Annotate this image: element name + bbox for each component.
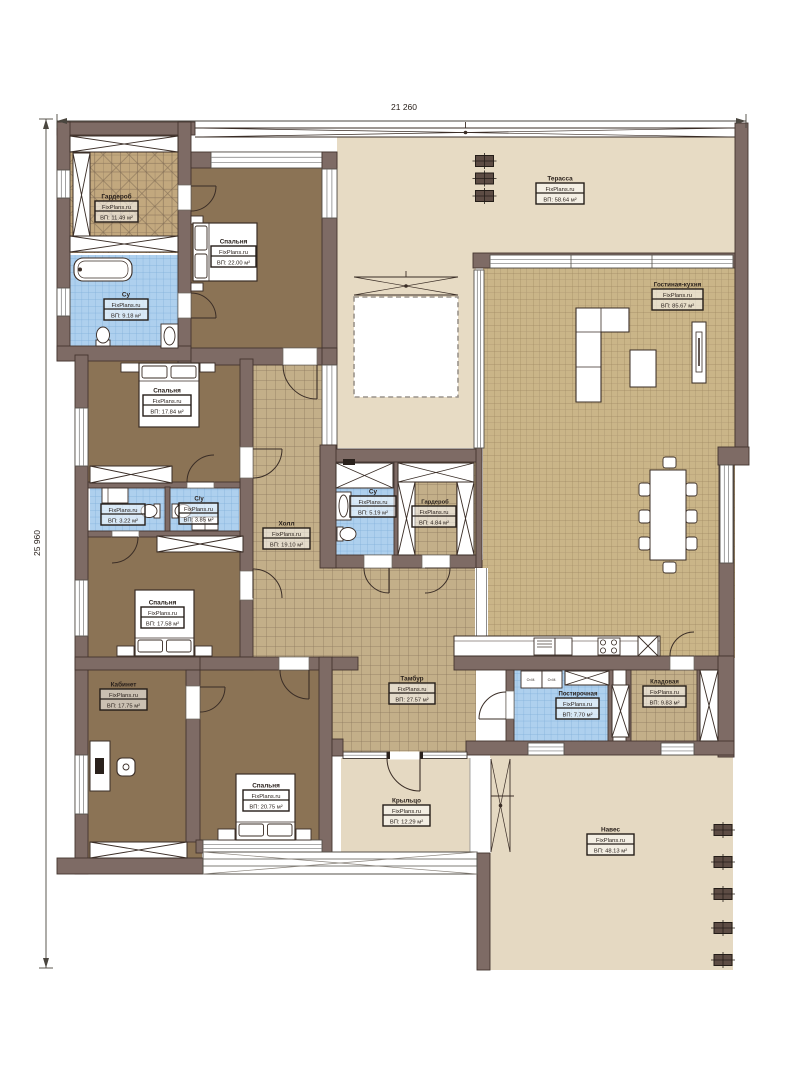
svg-text:FixPlans.ru: FixPlans.ru — [650, 690, 679, 696]
svg-text:FixPlans.ru: FixPlans.ru — [102, 205, 131, 211]
svg-text:Навес: Навес — [601, 827, 620, 834]
svg-text:FixPlans.ru: FixPlans.ru — [420, 510, 449, 516]
svg-text:Крыльцо: Крыльцо — [392, 798, 421, 805]
svg-text:FixPlans.ru: FixPlans.ru — [563, 702, 592, 708]
svg-text:Гардероб: Гардероб — [101, 193, 131, 201]
svg-text:ВП: 7.70 м²: ВП: 7.70 м² — [562, 712, 592, 718]
svg-text:ВП: 17.58 м²: ВП: 17.58 м² — [146, 621, 179, 627]
svg-text:Спальня: Спальня — [149, 600, 177, 607]
svg-text:ВП: 17.84 м²: ВП: 17.84 м² — [150, 409, 183, 415]
svg-text:Су: Су — [122, 292, 131, 299]
svg-text:ВП: 9.83 м²: ВП: 9.83 м² — [649, 700, 679, 706]
svg-text:Спальня: Спальня — [220, 239, 248, 246]
svg-text:FixPlans.ru: FixPlans.ru — [219, 250, 248, 256]
svg-text:Спальня: Спальня — [252, 783, 280, 790]
svg-text:Ст.М.: Ст.М. — [527, 678, 536, 682]
svg-text:FixPlans.ru: FixPlans.ru — [272, 532, 301, 538]
svg-text:ВП: 9.18 м²: ВП: 9.18 м² — [111, 313, 141, 319]
svg-text:FixPlans.ru: FixPlans.ru — [153, 399, 182, 405]
svg-text:FixPlans.ru: FixPlans.ru — [596, 838, 625, 844]
svg-text:25 960: 25 960 — [32, 530, 42, 556]
svg-text:Кабинет: Кабинет — [111, 681, 137, 689]
svg-text:ВП: 58.64 м²: ВП: 58.64 м² — [543, 197, 576, 203]
svg-text:FixPlans.ru: FixPlans.ru — [109, 508, 138, 514]
svg-text:ВП: 27.57 м²: ВП: 27.57 м² — [395, 697, 428, 703]
svg-text:ВП: 19.10 м²: ВП: 19.10 м² — [270, 542, 303, 548]
svg-text:Гостиная-кухня: Гостиная-кухня — [654, 282, 702, 289]
svg-text:ВП: 4.84 м²: ВП: 4.84 м² — [419, 520, 449, 526]
svg-text:FixPlans.ru: FixPlans.ru — [392, 809, 421, 815]
svg-text:Гардероб: Гардероб — [421, 499, 449, 506]
svg-text:Ст.М.: Ст.М. — [548, 678, 557, 682]
svg-text:Спальня: Спальня — [153, 388, 181, 395]
svg-text:ВП: 22.00 м²: ВП: 22.00 м² — [217, 260, 250, 266]
svg-text:ВП: 12.29 м²: ВП: 12.29 м² — [390, 819, 423, 825]
svg-text:ВП: 20.75 м²: ВП: 20.75 м² — [249, 804, 282, 810]
svg-text:ВП: 5.19 м²: ВП: 5.19 м² — [358, 510, 388, 516]
svg-text:FixPlans.ru: FixPlans.ru — [359, 500, 388, 506]
svg-text:Постирочная: Постирочная — [559, 692, 598, 698]
svg-text:Терасса: Терасса — [547, 176, 573, 183]
svg-text:Су: Су — [369, 489, 378, 496]
svg-text:ВП: 11.49 м²: ВП: 11.49 м² — [100, 215, 133, 221]
svg-text:FixPlans.ru: FixPlans.ru — [663, 293, 692, 299]
svg-text:ВП: 17.75 м²: ВП: 17.75 м² — [107, 703, 140, 709]
svg-text:FixPlans.ru: FixPlans.ru — [109, 693, 138, 699]
svg-text:ВП: 3.85 м²: ВП: 3.85 м² — [183, 517, 213, 523]
svg-text:FixPlans.ru: FixPlans.ru — [112, 303, 141, 309]
svg-text:Тамбур: Тамбур — [400, 675, 423, 683]
svg-text:21 260: 21 260 — [391, 102, 417, 112]
svg-text:FixPlans.ru: FixPlans.ru — [184, 507, 213, 513]
svg-text:Холл: Холл — [278, 521, 294, 528]
svg-text:FixPlans.ru: FixPlans.ru — [148, 611, 177, 617]
svg-text:С/у: С/у — [194, 497, 204, 503]
svg-text:Кладовая: Кладовая — [650, 680, 679, 686]
svg-text:ВП: 85.67 м²: ВП: 85.67 м² — [661, 303, 694, 309]
svg-text:FixPlans.ru: FixPlans.ru — [398, 687, 427, 693]
svg-text:FixPlans.ru: FixPlans.ru — [546, 187, 575, 193]
svg-text:FixPlans.ru: FixPlans.ru — [252, 794, 281, 800]
svg-text:ВП: 48.13 м²: ВП: 48.13 м² — [594, 848, 627, 854]
svg-text:ВП: 3.22 м²: ВП: 3.22 м² — [108, 518, 138, 524]
